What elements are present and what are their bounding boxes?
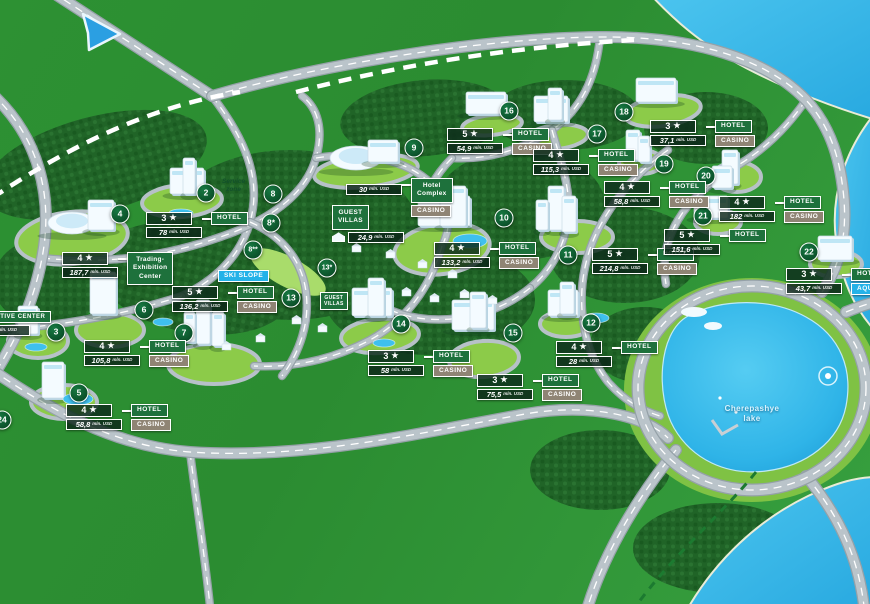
marker-number: 18 — [619, 108, 628, 117]
resort-map: Cherepashye lake Service zone 23456788*8… — [0, 0, 870, 604]
map-marker-15[interactable]: 15 — [504, 324, 523, 343]
site-label-group-ski-slope: SKI SLOPE — [218, 270, 269, 282]
casino-tag: CASINO — [542, 389, 582, 401]
lake-label: Cherepashye lake — [725, 404, 780, 425]
site-name-badge: GUEST VILLAS — [320, 292, 348, 310]
star-icon: ★ — [169, 214, 176, 222]
investment-value-badge: 105,8mln. USD — [84, 355, 140, 366]
map-marker-19[interactable]: 19 — [655, 155, 674, 174]
map-marker-6[interactable]: 6 — [135, 301, 154, 320]
marker-number: 8 — [271, 190, 276, 199]
label-connector — [402, 184, 411, 186]
marker-number: 11 — [564, 251, 573, 260]
star-icon: ★ — [391, 352, 398, 360]
star-rating-badge: 5★ — [664, 229, 710, 242]
casino-tag: CASINO — [237, 301, 277, 313]
map-marker-18[interactable]: 18 — [615, 103, 634, 122]
hotel-tag: HOTEL — [669, 181, 706, 194]
site-label-group-guest-villas: GUEST VILLAS24,9mln. USD — [332, 205, 404, 243]
star-rating-badge: 3★ — [146, 212, 192, 225]
marker-number: 8* — [267, 219, 275, 228]
star-rating-badge: 4★ — [533, 149, 579, 162]
casino-tag: CASINO — [411, 205, 451, 217]
label-connector — [118, 258, 127, 260]
hotel-tag: HOTEL — [542, 374, 579, 387]
marker-number: 10 — [499, 214, 508, 223]
label-connector — [503, 134, 512, 136]
marker-number: 13 — [286, 294, 295, 303]
site-label-group-21: 5★151,6mln. USDHOTEL — [664, 229, 766, 255]
hotel-tag: HOTEL — [211, 212, 248, 225]
marker-number: 19 — [659, 160, 668, 169]
marker-number: 14 — [396, 320, 405, 329]
casino-tag: CASINO — [669, 196, 709, 208]
site-label-group-3: ADMINISTRATIVE CENTER73mln. USD — [0, 311, 51, 336]
aqua-park-tag: AQUA PARK — [851, 283, 870, 295]
label-connector — [424, 356, 433, 358]
map-marker-5[interactable]: 5 — [70, 384, 89, 403]
casino-tag: CASINO — [715, 135, 755, 147]
site-label-group-guest-villas-small: GUEST VILLAS — [320, 292, 348, 310]
map-marker-8[interactable]: 8 — [264, 185, 283, 204]
marker-number: 8** — [248, 247, 257, 254]
hotel-tag: HOTEL — [149, 340, 186, 353]
marker-number: 15 — [508, 329, 517, 338]
hotel-tag: HOTEL — [715, 120, 752, 133]
marker-number: 4 — [118, 210, 123, 219]
hotel-tag: HOTEL — [237, 286, 274, 299]
star-rating-badge: 3★ — [368, 350, 414, 363]
marker-number: 22 — [804, 248, 813, 257]
marker-number: 7 — [182, 329, 187, 338]
label-connector — [660, 187, 669, 189]
map-marker-12[interactable]: 12 — [582, 314, 601, 333]
marker-number: 9 — [412, 144, 417, 153]
marker-number: 21 — [698, 212, 707, 221]
site-label-group-14: 3★58mln. USDHOTELCASINO — [368, 350, 473, 377]
ski-slope-tag: SKI SLOPE — [218, 270, 269, 282]
star-rating-badge: 4★ — [434, 242, 480, 255]
hotel-tag: HOTEL — [729, 229, 766, 242]
site-label-group-19: 4★58,8mln. USDHOTELCASINO — [604, 181, 709, 208]
star-icon: ★ — [470, 130, 477, 138]
investment-value-badge: 73mln. USD — [0, 325, 30, 336]
map-marker-11[interactable]: 11 — [559, 246, 578, 265]
hotel-tag: HOTEL — [598, 149, 635, 162]
map-marker-17[interactable]: 17 — [588, 125, 607, 144]
marker-number: 24 — [0, 416, 7, 425]
star-rating-badge: 4★ — [556, 341, 602, 354]
star-icon: ★ — [809, 270, 816, 278]
site-label-group-22: 3★43,7mln. USDHOTELAQUA PARK — [786, 268, 870, 295]
star-rating-badge: 5★ — [592, 248, 638, 261]
star-icon: ★ — [500, 376, 507, 384]
label-connector — [842, 274, 851, 276]
hotel-tag: HOTEL — [784, 196, 821, 209]
site-name-badge: Trading- Exhibition Center — [127, 252, 173, 285]
label-connector — [720, 235, 729, 237]
site-label-group-18: 3★37,1mln. USDHOTELCASINO — [650, 120, 755, 147]
star-rating-badge: 5★ — [447, 128, 493, 141]
star-icon: ★ — [457, 244, 464, 252]
casino-tag: CASINO — [784, 211, 824, 223]
site-label-group-6: 4★105,8mln. USDHOTELCASINO — [84, 340, 189, 367]
marker-number: 16 — [504, 107, 513, 116]
map-marker-13s[interactable]: 13* — [318, 259, 337, 278]
marker-number: 17 — [592, 130, 601, 139]
investment-value-badge: 75,5mln. USD — [477, 389, 533, 400]
site-label-group-7: 5★136,2mln. USDHOTELCASINO — [172, 286, 277, 313]
map-marker-14[interactable]: 14 — [392, 315, 411, 334]
casino-tag: CASINO — [149, 355, 189, 367]
investment-value-badge: 136,2mln. USD — [172, 301, 228, 312]
investment-value-badge: 54,9mln. USD — [447, 143, 503, 154]
star-rating-badge: 4★ — [62, 252, 108, 265]
site-label-group-15: 3★75,5mln. USDHOTELCASINO — [477, 374, 582, 401]
marker-number: 5 — [77, 389, 82, 398]
north-arrow-icon — [70, 5, 130, 65]
site-label-group-2: 3★78mln. USDHOTEL — [146, 212, 248, 238]
label-connector — [122, 410, 131, 412]
hotel-tag: HOTEL — [131, 404, 168, 417]
investment-value-badge: 37,1mln. USD — [650, 135, 706, 146]
service-zone-label: Service zone — [222, 178, 245, 194]
label-connector — [612, 347, 621, 349]
map-marker-8ss[interactable]: 8** — [244, 241, 263, 260]
lake-name-line1: Cherepashye — [725, 404, 780, 414]
site-label-group-10: 4★133,2mln. USDHOTELCASINO — [434, 242, 539, 269]
investment-value-badge: 151,6mln. USD — [664, 244, 720, 255]
site-name-badge: GUEST VILLAS — [332, 205, 369, 230]
hotel-tag: HOTEL — [499, 242, 536, 255]
star-icon: ★ — [195, 288, 202, 296]
casino-tag: CASINO — [598, 164, 638, 176]
marker-number: 12 — [586, 319, 595, 328]
map-marker-13[interactable]: 13 — [282, 289, 301, 308]
investment-value-badge: 78mln. USD — [146, 227, 202, 238]
map-marker-24[interactable]: 24 — [0, 411, 12, 430]
star-rating-badge: 3★ — [477, 374, 523, 387]
star-icon: ★ — [107, 342, 114, 350]
label-connector — [533, 380, 542, 382]
map-marker-2[interactable]: 2 — [197, 184, 216, 203]
site-label-group-17: 4★115,3mln. USDHOTELCASINO — [533, 149, 638, 176]
star-icon: ★ — [673, 122, 680, 130]
investment-value-badge: 43,7mln. USD — [786, 283, 842, 294]
hotel-tag: HOTEL — [851, 268, 870, 281]
casino-tag: CASINO — [131, 419, 171, 431]
star-rating-badge: 4★ — [604, 181, 650, 194]
investment-value-badge: 133,2mln. USD — [434, 257, 490, 268]
casino-tag: CASINO — [433, 365, 473, 377]
map-overlay: Cherepashye lake Service zone 23456788*8… — [0, 0, 870, 604]
label-connector — [775, 202, 784, 204]
map-marker-10[interactable]: 10 — [495, 209, 514, 228]
map-marker-16[interactable]: 16 — [500, 102, 519, 121]
star-rating-badge: 5★ — [172, 286, 218, 299]
investment-value-badge: 58,8mln. USD — [604, 196, 660, 207]
site-label-group-12: 4★28mln. USDHOTEL — [556, 341, 658, 367]
map-marker-22[interactable]: 22 — [800, 243, 819, 262]
star-icon: ★ — [742, 198, 749, 206]
marker-number: 20 — [701, 172, 710, 181]
site-label-group-20: 4★182mln. USDHOTELCASINO — [719, 196, 824, 223]
hotel-tag: HOTEL — [512, 128, 549, 141]
investment-value-badge: 115,3mln. USD — [533, 164, 589, 175]
site-label-group-4: 4★187,7mln. USDTrading- Exhibition Cente… — [62, 252, 173, 285]
investment-value-badge: 30mln. USD — [346, 184, 402, 195]
star-rating-badge: 4★ — [719, 196, 765, 209]
marker-number: 6 — [142, 306, 147, 315]
star-icon: ★ — [687, 231, 694, 239]
star-icon: ★ — [85, 254, 92, 262]
label-connector — [706, 126, 715, 128]
investment-value-badge: 182mln. USD — [719, 211, 775, 222]
casino-tag: CASINO — [499, 257, 539, 269]
investment-value-badge: 214,8mln. USD — [592, 263, 648, 274]
investment-value-badge: 187,7mln. USD — [62, 267, 118, 278]
site-label-group-5: 4★58,8mln. USDHOTELCASINO — [66, 404, 171, 431]
label-connector — [490, 248, 499, 250]
star-icon: ★ — [615, 250, 622, 258]
star-rating-badge: 3★ — [650, 120, 696, 133]
label-connector — [228, 292, 237, 294]
star-rating-badge: 3★ — [786, 268, 832, 281]
marker-number: 2 — [204, 189, 209, 198]
label-connector — [140, 346, 149, 348]
star-icon: ★ — [556, 151, 563, 159]
villa-icon — [332, 232, 345, 242]
label-connector — [589, 155, 598, 157]
map-marker-9[interactable]: 9 — [405, 139, 424, 158]
hotel-tag: HOTEL — [433, 350, 470, 363]
casino-tag: CASINO — [657, 263, 697, 275]
lake-name-line2: lake — [743, 414, 760, 424]
site-name-badge: Hotel Complex — [411, 178, 453, 203]
star-icon: ★ — [579, 343, 586, 351]
investment-value-badge: 58,8mln. USD — [66, 419, 122, 430]
investment-value-badge: 58mln. USD — [368, 365, 424, 376]
hotel-tag: HOTEL — [621, 341, 658, 354]
marker-number: 3 — [54, 328, 59, 337]
map-marker-8s[interactable]: 8* — [262, 214, 281, 233]
administrative-center-tag: ADMINISTRATIVE CENTER — [0, 311, 51, 323]
map-marker-21[interactable]: 21 — [694, 207, 713, 226]
star-rating-badge: 4★ — [84, 340, 130, 353]
star-icon: ★ — [89, 406, 96, 414]
label-connector — [202, 218, 211, 220]
star-icon: ★ — [627, 183, 634, 191]
marker-number: 13* — [322, 265, 333, 272]
investment-value-badge: 28mln. USD — [556, 356, 612, 367]
investment-value-badge: 24,9mln. USD — [348, 232, 404, 243]
star-rating-badge: 4★ — [66, 404, 112, 417]
map-marker-4[interactable]: 4 — [111, 205, 130, 224]
label-connector — [648, 254, 657, 256]
